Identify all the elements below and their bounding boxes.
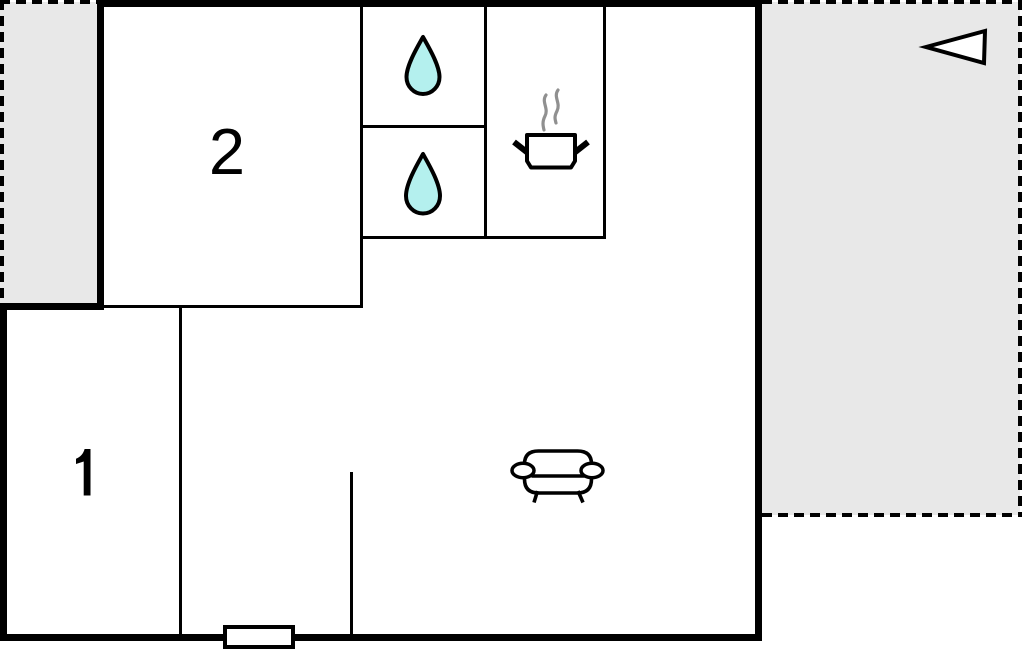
svg-text:2: 2 (209, 115, 245, 188)
